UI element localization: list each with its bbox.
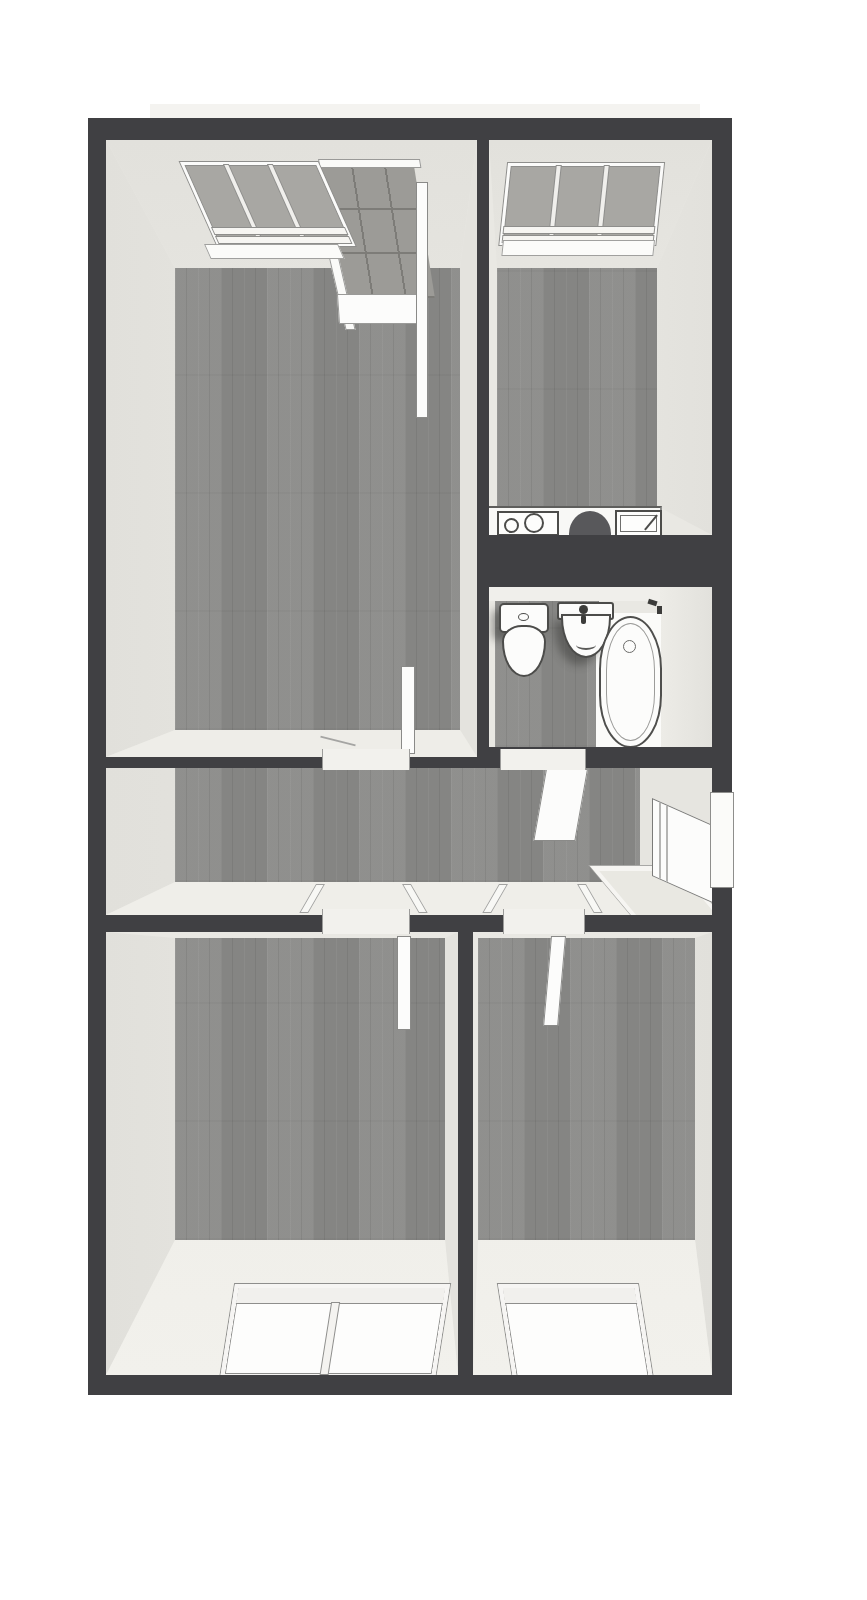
basin-faucet-stem [581,615,586,624]
balcony-door-head-frame [318,159,421,168]
kitchen-window [499,163,664,245]
bathtub-drain [623,640,636,653]
window-head-band [503,1288,638,1304]
bedroom-small-window [498,1284,654,1375]
kitchen-sink [615,510,662,535]
bedroom-large-door-leaf-open [397,936,411,1030]
dark-appliance [569,511,611,535]
threshold-bathroom-hallway [500,749,586,770]
door-swing-mark [320,736,355,747]
bedroom-large-double-window [220,1284,450,1375]
window-rail [504,227,655,233]
kitchen-counter [489,506,662,535]
tub-faucet-handle [657,606,662,614]
threshold-living-hallway [322,749,410,770]
roof-edge-strip [150,104,700,118]
balcony-door-leaf-open [416,182,428,418]
basin-faucet [579,605,588,614]
threshold-hallway-bedroom-small [503,909,585,934]
door-frame-line [659,802,661,879]
threshold-hallway-bedroom-large [322,909,410,934]
bedroom-small-floor [478,938,695,1240]
room-kitchen [489,140,712,535]
floor-plan-canvas [0,0,867,1600]
living-hall-door-leaf-open [401,666,415,754]
bathroom-top-wall-face [489,587,712,601]
room-bedroom-small [473,932,712,1375]
window-head-band [236,1288,446,1304]
burner-large [524,513,544,533]
door-frame-line [666,805,668,882]
cooktop [497,511,559,535]
window-mullion [321,1303,339,1374]
flush-button [518,613,529,621]
window-rail [216,237,351,243]
basin-drain-line [576,640,596,650]
living-window-sill [204,244,345,259]
room-living [106,140,477,757]
kitchen-window-sill [501,240,655,256]
room-bathroom [489,587,712,747]
window-rail [212,228,347,234]
bathtub [599,616,662,747]
balcony-door-threshold [337,294,421,324]
entrance-door-opening [710,792,734,888]
burner-small [504,518,519,533]
bathroom-right-wall-face [660,587,712,747]
room-bedroom-large [106,932,458,1375]
kitchen-floor [497,268,657,508]
